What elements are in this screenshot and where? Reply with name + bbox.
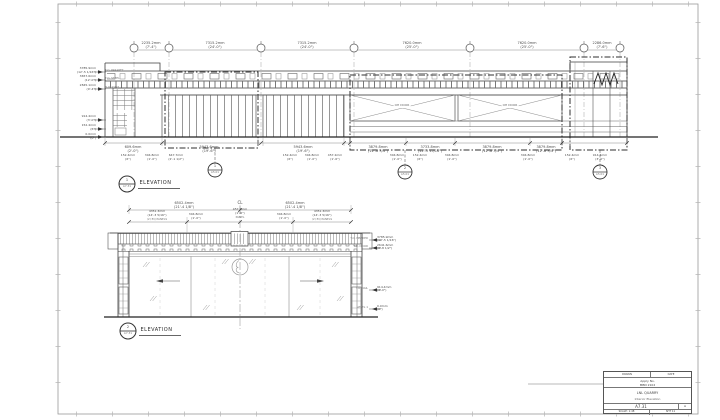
grid-dim: 7315.2mm(24'-0") <box>297 41 316 50</box>
drawing-sheet: 2235.2mm(7'-4") 7315.2mm(24'-0") 7315.2m… <box>0 0 720 420</box>
grid-dim: 7620.0mm(25'-0") <box>517 41 536 50</box>
callout-number: 2 <box>404 166 406 170</box>
level-marker: 3785.9mm(12'-5 1/16") <box>377 236 396 244</box>
centerline-label: CL <box>237 200 242 205</box>
callout-sheet: A5.01 <box>211 171 219 174</box>
view-title: ELEVATION <box>141 327 173 333</box>
sub-dim: 304.8mm(1'-0") <box>145 154 159 162</box>
title-block-date: DATE <box>650 372 691 377</box>
dim: 6502.4mm(21'-4 1/8") <box>174 201 194 210</box>
callout-number: 1 <box>214 164 216 168</box>
permit-value: MBN 2102 <box>604 383 691 387</box>
sub-dim: 647.7mm(2'-1 1/2") <box>168 154 183 162</box>
view-title: ELEVATION <box>140 180 172 186</box>
grid-dim: 2286.0mm(7'-6") <box>592 41 611 50</box>
scale: SCALE: 1:48 <box>604 410 649 415</box>
sub-dim: 304.8mm(1'-0") <box>390 154 404 162</box>
callout-number: 3 <box>599 166 601 170</box>
dim: 304.8mm(1'-0") <box>189 213 203 221</box>
level-marker: 914.4mm(3'-0") <box>82 115 96 123</box>
dim: 304.8mm(1'-0") <box>277 213 291 221</box>
level-marker: 0.0mm(0") <box>85 133 96 141</box>
level-marker: 2641.6mm(8'-8 1/2") <box>377 244 393 252</box>
view-number: 2 <box>127 325 129 329</box>
callout-sheet: A5.01 <box>401 173 409 176</box>
sheet-number: A7.31 <box>604 404 678 409</box>
level-marker: 152.4mm(6") <box>82 124 96 132</box>
sub-dim: 152.4mm(6") <box>121 154 135 162</box>
view-number: 1 <box>126 178 128 182</box>
drawing-title: Interior Elevation <box>604 397 691 401</box>
sub-dim: 152.4mm(6") <box>413 154 427 162</box>
panel-label: OH DOOR <box>394 104 411 108</box>
dim: 3733.8mm(12'-3 15/16") <box>418 145 442 154</box>
grid-dim: 7620.0mm(25'-0") <box>402 41 421 50</box>
sub-dim: 457.2mm(1'-6") <box>328 154 342 162</box>
grid-dim: 7315.2mm(24'-0") <box>205 41 224 50</box>
sheet-linework <box>0 0 720 420</box>
level-marker: 0.0mm(0") <box>377 305 388 313</box>
title-block-drawn: DRAWN <box>604 372 650 377</box>
sub-dim: 152.4mm(6") <box>283 154 297 162</box>
dim: 3879.8mm(12'-8 3/4") <box>482 145 502 154</box>
level-tag: T.O. HEADER <box>350 237 368 240</box>
view-sheet: A7.31 <box>123 185 131 188</box>
level-marker: 3657.6mm(12'-0") <box>80 75 96 83</box>
grid-dim: 2235.2mm(7'-4") <box>141 41 160 50</box>
dim: 3879.8mm(12'-8 3/4") <box>368 145 388 154</box>
level-tag: T.O. DOOR <box>353 245 368 248</box>
title-block: DRAWN DATE Apply No. MBN 2102 LNL QUARRY… <box>603 371 692 414</box>
dim: 6502.4mm(21'-4 1/8") <box>285 201 305 210</box>
sheet-note: SHT 11 <box>649 410 691 415</box>
dim: 5943.6mm(19'-6") <box>293 145 312 154</box>
level-marker: 914.4mm(3'-0") <box>377 286 391 294</box>
title-block-titles: LNL QUARRY Interior Elevation <box>604 388 691 404</box>
level-tag: LEVEL 1 <box>357 306 368 309</box>
dim: 5943.6mm(19'-6") <box>199 145 218 154</box>
dim: 4351.3mm(14'-3 5/16")(2) EQ PANELS <box>312 210 332 221</box>
level-tag: T.O. PARAPET <box>105 69 123 72</box>
sub-dim: 304.8mm(1'-0") <box>521 154 535 162</box>
project-name: LNL QUARRY <box>604 391 691 395</box>
bottom-elevation-linework <box>104 205 381 339</box>
dim: 457.2mm(1'-6")PANEL <box>233 208 247 219</box>
sub-dim: 304.8mm(1'-0") <box>445 154 459 162</box>
level-tag: T.O. RAIL <box>356 287 368 290</box>
dim: 609.6mm(2'-0") <box>125 145 142 154</box>
level-tag: B.O. JOIST <box>105 86 119 89</box>
level-marker: 2845.1mm(9'-4") <box>80 84 96 92</box>
sub-dim: 304.8mm(1'-0") <box>305 154 319 162</box>
dim: 4351.3mm(14'-3 5/16")(2) EQ PANELS <box>147 210 167 221</box>
sub-dim: 152.4mm(6") <box>565 154 579 162</box>
callout-sheet: A5.01 <box>596 173 604 176</box>
top-elevation-linework <box>60 41 658 192</box>
title-block-scale-row: SCALE: 1:48 SHT 11 <box>604 410 691 415</box>
revision: A <box>678 404 691 409</box>
dim: 3879.8mm(12'-8 3/4") <box>536 145 556 154</box>
panel-label: OH DOOR <box>502 104 519 108</box>
sub-dim: 914.4mm(3'-0") <box>593 154 607 162</box>
view-sheet: A7.31 <box>124 332 132 335</box>
title-block-permit: Apply No. MBN 2102 <box>604 378 691 388</box>
level-tag: T.O. STEEL <box>105 77 120 80</box>
